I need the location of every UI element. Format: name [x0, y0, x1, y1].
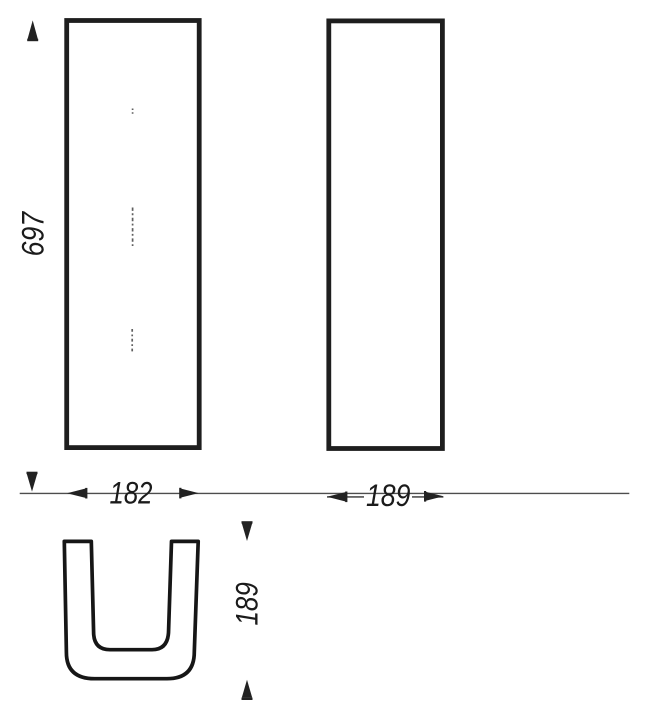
svg-text:697: 697	[15, 211, 51, 257]
svg-text:189: 189	[229, 582, 265, 625]
svg-text:182: 182	[110, 475, 153, 511]
svg-text:189: 189	[366, 477, 411, 513]
